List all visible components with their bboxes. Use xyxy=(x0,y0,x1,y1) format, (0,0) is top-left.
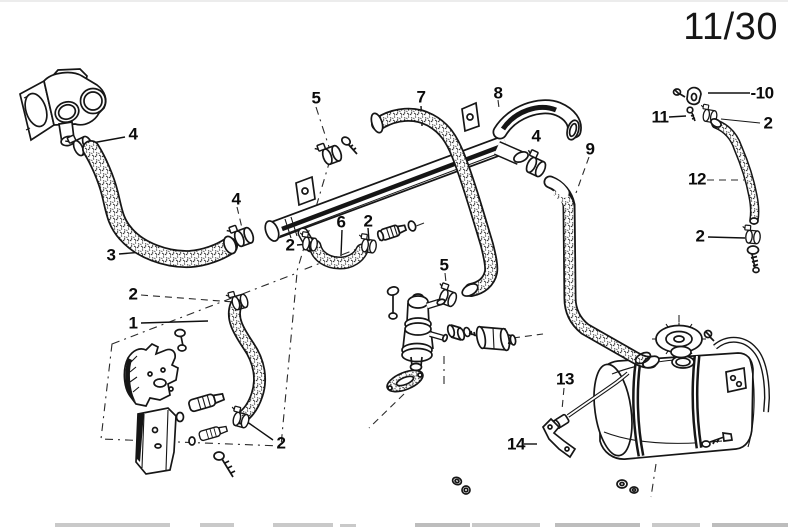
small-fasteners xyxy=(452,476,470,494)
water-hose-7 xyxy=(369,112,491,299)
callout-label-2-clamp-right-bottom: 2 xyxy=(696,228,705,245)
callout-label-14-bracket: 14 xyxy=(507,436,525,453)
pipe-bracket-tab-right xyxy=(462,103,479,131)
drain-fitting xyxy=(748,246,760,273)
water-hose-9 xyxy=(550,182,661,370)
water-hose-3 xyxy=(91,149,238,259)
callout-label-2-clamp-hose1-bottom: 2 xyxy=(277,435,286,452)
callout-label-8-hose: 8 xyxy=(494,85,503,102)
hose-clamp-2b xyxy=(298,231,319,251)
thermostat-housing xyxy=(20,69,106,147)
water-hose-6 xyxy=(315,246,362,263)
callout-label-2-clamp-hose1-top: 2 xyxy=(129,286,138,303)
water-hose-12 xyxy=(709,117,758,224)
callout-label-9-hose: 9 xyxy=(586,141,595,158)
callout-label-7-hose: 7 xyxy=(417,89,426,106)
callout-label-3-hose: 3 xyxy=(107,247,116,264)
screw-top-centre xyxy=(340,135,357,154)
callout-label-4-pipe-clamp: 4 xyxy=(232,191,241,208)
parts-diagram-canvas xyxy=(0,0,788,529)
water-hose-8 xyxy=(500,107,581,141)
callout-label-2-clamp-hose6: 2 xyxy=(364,213,373,230)
callout-label-2-clamp-right-top: 2 xyxy=(764,115,773,132)
auxiliary-valve-assembly xyxy=(384,286,448,396)
hose-clamp-2d xyxy=(741,225,761,244)
pipe-bracket-tab-left xyxy=(296,177,315,205)
callout-label-12-hose: 12 xyxy=(688,171,706,188)
tank-cap xyxy=(652,323,714,358)
connector-and-switch-block xyxy=(447,324,517,351)
callout-label-6-hose: 6 xyxy=(337,214,346,231)
parts-diagram-page: 11/30 4 3 4 5 7 8 4 9 -10 11 2 12 2 2 6 … xyxy=(0,0,788,529)
callout-label-4-branch-clamp: 4 xyxy=(532,128,541,145)
callout-label-10-clip: -10 xyxy=(750,85,773,102)
callout-label-13-vent-pipe: 13 xyxy=(556,371,574,388)
callout-label-2-clamp-pipe-nipple: 2 xyxy=(286,237,295,254)
washers-below-tank xyxy=(617,480,638,493)
pipe-clip-10 xyxy=(674,88,702,105)
threaded-fitting xyxy=(377,220,417,242)
hose-clamp-5a xyxy=(314,139,343,168)
callout-label-4-thermostat-clamp: 4 xyxy=(129,126,138,143)
callout-label-11-screw: 11 xyxy=(652,109,669,126)
water-hose-1 xyxy=(234,305,259,418)
callout-label-5-clamp-valve: 5 xyxy=(440,257,449,274)
screw-11 xyxy=(687,107,695,121)
callout-label-5-clamp-top: 5 xyxy=(312,90,321,107)
page-number: 11/30 xyxy=(683,8,778,46)
mounting-bracket-assembly xyxy=(124,330,235,478)
callout-label-1-hose: 1 xyxy=(129,315,138,332)
